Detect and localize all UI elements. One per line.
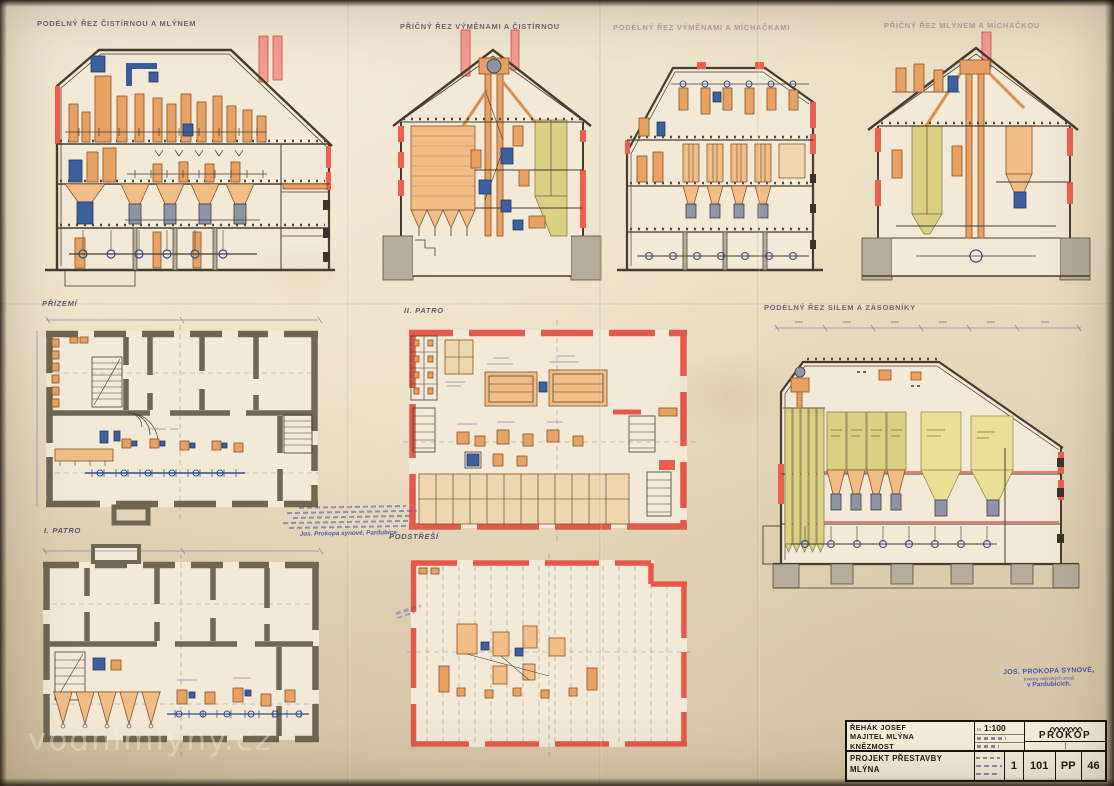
drawing-section-exchangers-cleaning [383,30,601,304]
fold-crease [347,0,350,786]
title-block-owner: ŘEHÁK JOSEF MAJITEL MLÝNA KNĚZMOST [847,722,975,750]
file-number: 46 [1082,752,1105,780]
owner-name: ŘEHÁK JOSEF [850,723,971,732]
series-code: PP [1056,752,1083,780]
scale-value: 1:100 [984,723,1006,733]
project-title-line2: MLÝNA [850,765,971,776]
title-block-numbers: 1 101 PP 46 [1005,752,1105,780]
owner-role: MAJITEL MLÝNA [850,732,971,741]
sheet-number: 1 [1005,752,1024,780]
drawing-section-silo [761,312,1094,604]
title-block-project: PROJEKT PŘESTAVBY MLÝNA [847,752,975,780]
label-section-cleaning-mill: PODÉLNÝ ŘEZ ČISTÍRNOU A MLÝNEM [37,19,196,28]
watermark: vodnimlyny.cz [28,722,273,758]
fold-crease [599,0,602,786]
scan-edge [0,0,7,786]
fold-crease [757,0,760,786]
drawing-plan-ground [30,313,332,527]
drawing-plan-attic [399,548,697,764]
foundation [862,238,1090,280]
title-block-logo: PROKOP [1025,722,1105,750]
title-block-scale: M.1:100 [975,722,1025,750]
fold-crease [0,303,1114,306]
scan-edge [1105,0,1114,786]
label-section-exchangers-mixers: PODÉLNÝ ŘEZ VÝMĚNAMI A MÍCHAČKAMI [613,23,790,32]
cell-room [411,336,437,400]
title-block-dates [975,752,1005,780]
title-block: ŘEHÁK JOSEF MAJITEL MLÝNA KNĚZMOST M.1:1… [845,720,1107,782]
drawing-section-cleaning-mill [35,32,337,294]
project-title-line1: PROJEKT PŘESTAVBY [850,754,971,765]
scan-edge [0,778,1114,786]
drawing-number: 101 [1024,752,1056,780]
maker-stamp: JOS. PROKOPA SYNOVÉ, továrny mlýnských s… [991,666,1107,689]
dimension-line [775,322,1081,331]
foundation [383,236,601,280]
scale-label: M. [977,727,982,732]
bins-grid [419,474,629,524]
drawing-section-mill-mixer [856,30,1096,298]
drawing-section-exchangers-mixers [613,44,827,294]
company-name: PROKOP [1039,730,1091,741]
owner-town: KNĚZMOST [850,742,971,750]
blueprint-scan-sheet: PODÉLNÝ ŘEZ ČISTÍRNOU A MLÝNEM PŘÍČNÝ ŘE… [0,0,1114,786]
label-plan-first-floor: I. PATRO [44,526,81,535]
label-section-mill-mixer: PŘÍČNÝ ŘEZ MLÝNEM A MÍCHAČKOU [884,21,1040,30]
scan-edge [0,0,1114,7]
drawing-plan-second-floor [397,312,699,544]
